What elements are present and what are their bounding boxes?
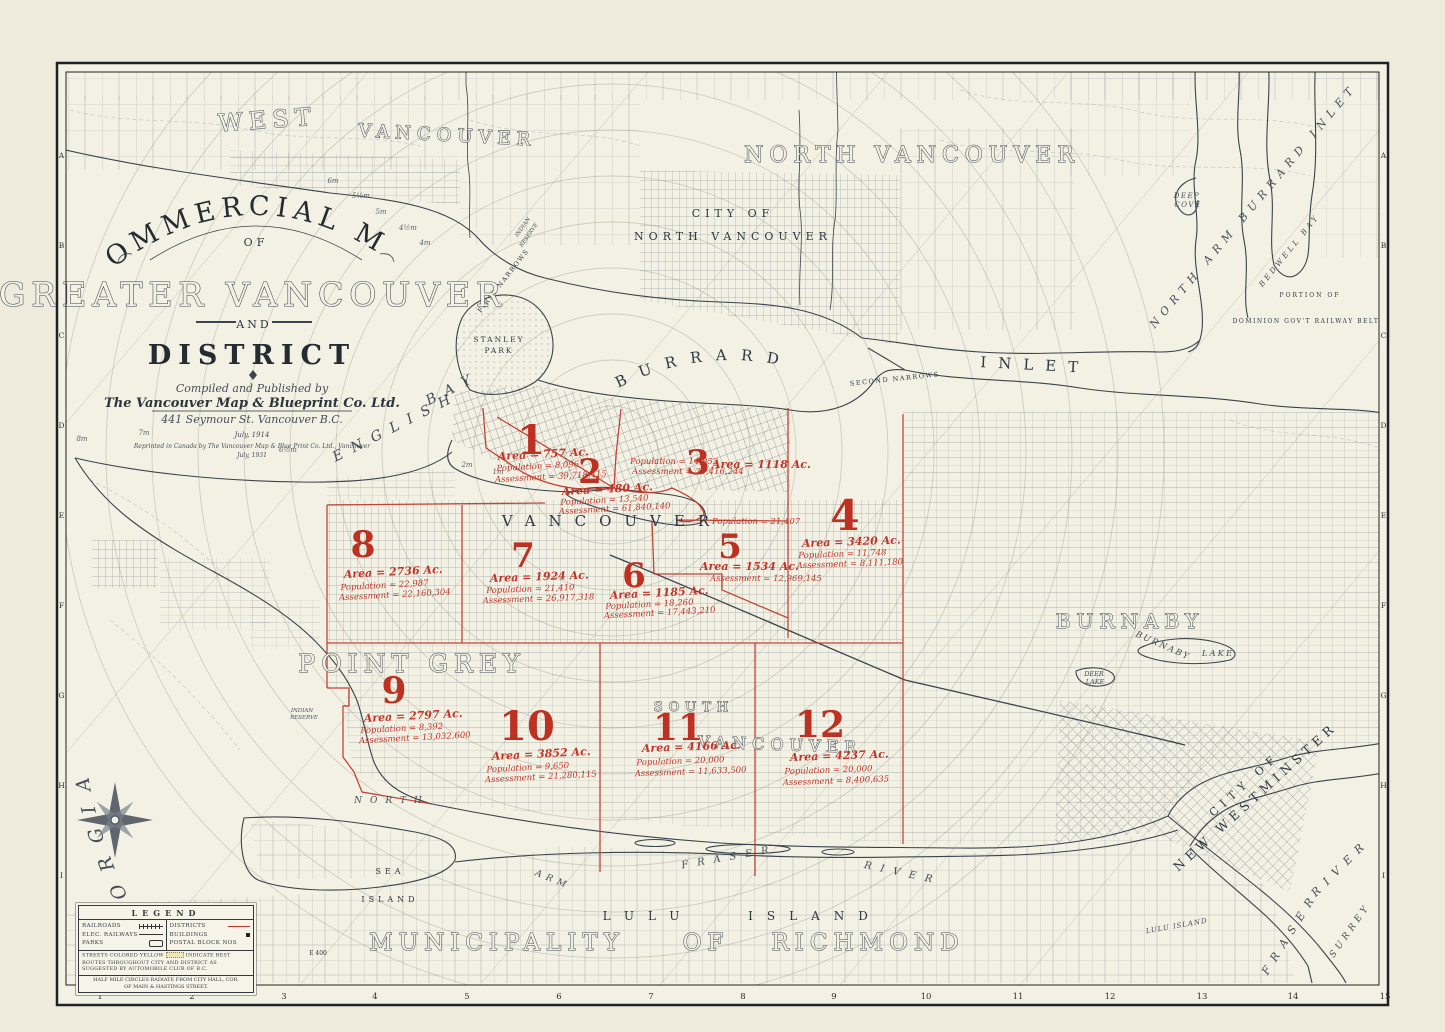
label-sea-island: ISLAND: [361, 895, 418, 904]
grid-number: 6: [556, 992, 561, 1002]
electric-railway-symbol: [139, 934, 163, 935]
label-e400: E 400: [309, 950, 327, 957]
grid-letter: D: [1380, 421, 1386, 430]
grid-letter: B: [59, 241, 65, 250]
label-sea: SEA: [375, 867, 404, 876]
legend-box: LEGEND RAILROADS ELEC. RAILWAYS PARKS DI…: [78, 905, 254, 993]
legend-left-column: RAILROADS ELEC. RAILWAYS PARKS: [79, 920, 166, 950]
label-deer-lake-1: DEER: [1083, 670, 1104, 678]
legend-parks-label: PARKS: [82, 939, 104, 948]
park-symbol: [149, 940, 163, 947]
label-indian-3: INDIAN: [290, 708, 314, 714]
grid-letter: I: [1382, 871, 1385, 880]
map-sheet: Year 1913: [0, 0, 1445, 1032]
legend-railroads-label: RAILROADS: [82, 922, 121, 931]
grid-number: 15: [1380, 992, 1391, 1002]
district-5-assessment: Assessment = 12,969,145: [709, 574, 822, 584]
grid-number: 8: [740, 992, 745, 1002]
district-5-area: Area = 1534 Ac.: [699, 560, 799, 573]
label-deep: DEEP: [1173, 192, 1201, 200]
grid-letter: H: [58, 781, 65, 790]
district-12-number: 12: [795, 704, 845, 746]
grid-number: 1: [97, 992, 102, 1002]
label-portion-of: PORTION OF: [1280, 292, 1341, 299]
grid-number: 2: [189, 992, 194, 1002]
legend-postal-label: POSTAL BLOCK NOS: [170, 939, 238, 948]
grid-number: 5: [464, 992, 469, 1002]
grid-letter: G: [59, 691, 65, 700]
legend-note-routes-a: STREETS COLORED YELLOW: [82, 953, 164, 959]
label-burnaby-lake-2: LAKE: [1201, 649, 1234, 659]
label-richmond: RICHMOND: [771, 930, 964, 956]
grid-number: 11: [1013, 992, 1024, 1002]
label-lulu: LULU: [603, 909, 694, 923]
depth-5m: 5m: [375, 208, 386, 216]
title-district: DISTRICT: [148, 340, 356, 371]
title-reprint: Reprinted in Canada by The Vancouver Map…: [133, 443, 371, 450]
railroad-symbol: [139, 924, 163, 929]
grid-letter: E: [59, 511, 64, 520]
grid-letter: A: [58, 151, 65, 160]
district-3-pop: Population = 14,853: [629, 457, 718, 467]
legend-note-circles: HALF MILE CIRCLES RADIATE FROM CITY HALL…: [79, 975, 253, 993]
grid-number: 3: [281, 992, 286, 1002]
title-date: July, 1914: [233, 431, 270, 439]
legend-elec-railways-label: ELEC. RAILWAYS: [82, 931, 138, 940]
label-city-of: CITY OF: [692, 207, 775, 220]
label-lulu-island: ISLAND: [748, 909, 882, 923]
grid-letter: F: [59, 601, 64, 610]
yellow-route-swatch: [166, 952, 184, 958]
grid-letter: F: [1381, 601, 1386, 610]
grid-number: 12: [1105, 992, 1116, 1002]
legend-buildings-label: BUILDINGS: [170, 931, 208, 940]
label-north-arm-1: NORTH: [353, 796, 430, 806]
label-reserve-3: RESERVE: [289, 715, 318, 721]
grid-number: 13: [1197, 992, 1208, 1002]
title-address: 441 Seymour St. Vancouver B.C.: [160, 413, 343, 426]
label-dominion-belt: DOMINION GOV'T RAILWAY BELT: [1233, 318, 1380, 325]
district-3-assessment: Assessment = 39,416,244: [631, 467, 744, 477]
label-of: OF: [683, 930, 730, 956]
label-park: PARK: [484, 346, 513, 355]
building-symbol: [246, 933, 250, 937]
label-vancouver-city: VANCOUVER: [501, 512, 722, 530]
grid-letter: A: [1380, 151, 1387, 160]
depth-7m: 7m: [138, 429, 149, 437]
map-canvas: WEST VANCOUVER NORTH VANCOUVER CITY OF N…: [0, 0, 1445, 1032]
legend-right-column: DISTRICTS BUILDINGS POSTAL BLOCK NOS: [166, 920, 254, 950]
label-deer-lake-2: LAKE: [1085, 678, 1105, 686]
grid-number: 4: [372, 992, 377, 1002]
grid-letter: B: [1381, 241, 1387, 250]
district-5-pop: Population = 21,407: [711, 517, 801, 527]
grid-number: 14: [1288, 992, 1299, 1002]
title-and: AND: [235, 318, 271, 331]
grid-letter: I: [60, 871, 63, 880]
label-burnaby: BURNABY: [1056, 609, 1204, 633]
title-publisher: The Vancouver Map & Blueprint Co. Ltd.: [104, 396, 400, 411]
title-of: OF: [244, 236, 269, 249]
grid-letter: E: [1381, 511, 1386, 520]
grid-number: 10: [921, 992, 932, 1002]
grid-letter: C: [59, 331, 65, 340]
district-10-number: 10: [499, 703, 555, 750]
district-4-number: 4: [830, 491, 859, 540]
district-9-number: 9: [381, 670, 406, 712]
legend-districts-label: DISTRICTS: [170, 922, 206, 931]
depth-4-5m: 4½m: [398, 224, 417, 232]
label-cove: COVE: [1174, 201, 1201, 209]
depth-4m: 4m: [418, 239, 430, 247]
title-compiled: Compiled and Published by: [176, 382, 329, 395]
depth-5-5m: 5½m: [352, 192, 370, 200]
grid-number: 7: [648, 992, 653, 1002]
grid-letter: D: [58, 421, 64, 430]
district-8-number: 8: [350, 524, 375, 566]
label-north-vancouver: NORTH VANCOUVER: [744, 143, 1080, 168]
label-point-grey: POINT GREY: [298, 649, 525, 678]
legend-title: LEGEND: [79, 906, 253, 919]
grid-letter: C: [1381, 331, 1387, 340]
legend-note-routes: STREETS COLORED YELLOWINDICATE BEST ROUT…: [79, 950, 253, 975]
grid-number: 9: [831, 992, 836, 1002]
grid-letter: G: [1381, 691, 1387, 700]
grid-letter: H: [1380, 781, 1387, 790]
depth-2m: 2m: [460, 461, 472, 469]
depth-6m: 6m: [327, 177, 338, 185]
district-boundary-symbol: [228, 926, 250, 927]
title-date2: July, 1931: [235, 452, 267, 459]
label-municipality: MUNICIPALITY: [369, 930, 625, 956]
title-main: GREATER VANCOUVER: [0, 275, 507, 314]
depth-8m: 8m: [76, 435, 87, 443]
label-stanley: STANLEY: [473, 335, 524, 344]
label-city-of-north-vancouver: NORTH VANCOUVER: [634, 230, 832, 243]
